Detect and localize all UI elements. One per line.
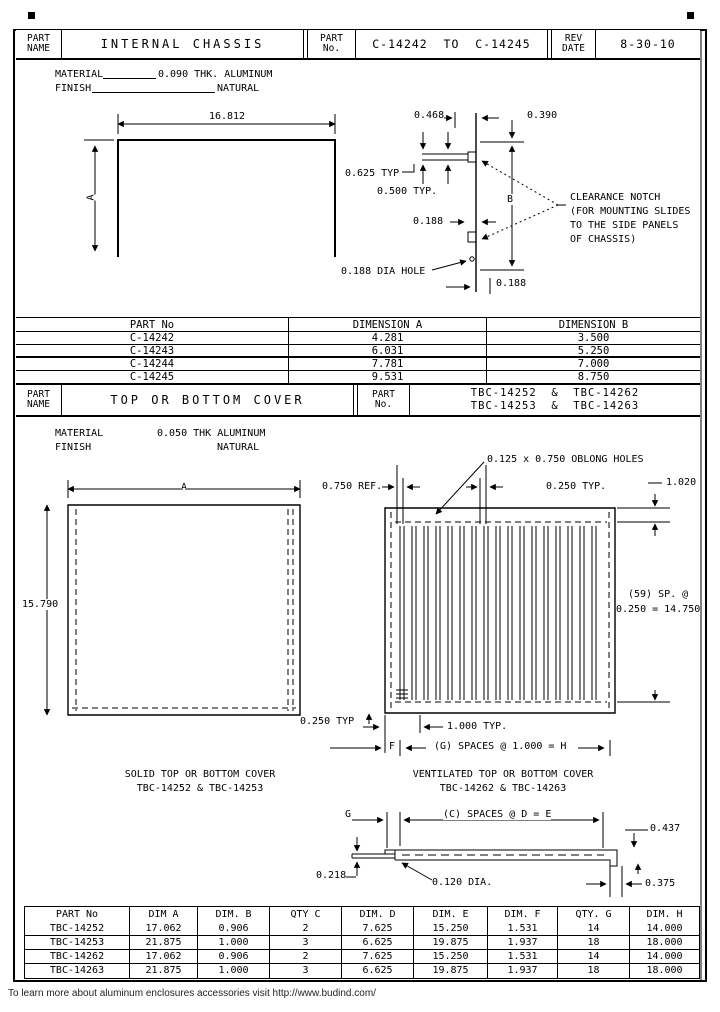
table-cell: 1.531 [487, 950, 557, 963]
part-name-label: PART NAME [16, 30, 62, 58]
material-label: MATERIAL [55, 428, 103, 439]
dim-0120-dia: 0.120 DIA. [432, 877, 492, 888]
finish-value: NATURAL [217, 442, 259, 453]
finish-blank-line [92, 84, 215, 93]
table-cell: 14 [557, 950, 629, 963]
drawing-sheet: PART NAME INTERNAL CHASSIS PART No. C-14… [0, 0, 720, 1012]
table-cell: 21.875 [129, 964, 197, 978]
cover-dimension-table: PART No DIM A DIM. B QTY C DIM. D DIM. E… [24, 906, 700, 979]
part-no-value: C-14242 TO C-14245 [356, 30, 548, 58]
part-name-value: TOP OR BOTTOM COVER [62, 385, 354, 415]
table-cell: 3 [269, 936, 341, 949]
dim-0188-bottom: 0.188 [496, 278, 526, 289]
footer-note: To learn more about aluminum enclosures … [8, 988, 376, 999]
table-cell: 14.000 [629, 922, 699, 935]
dim-0750-ref: 0.750 REF. [322, 481, 382, 492]
caption-solid-cover-line1: SOLID TOP OR BOTTOM COVER [125, 769, 276, 780]
table-cell: 2 [269, 922, 341, 935]
dim-0500-typ: 0.500 TYP. [377, 186, 437, 197]
table-cell: 2 [269, 950, 341, 963]
note-clearance-line2: (FOR MOUNTING SLIDES [570, 206, 690, 217]
table-cell: 18 [557, 964, 629, 978]
table-cell: TBC-14263 [25, 964, 129, 978]
table-cell: 3.500 [486, 332, 700, 344]
table-cell: 6.031 [288, 345, 486, 356]
col-header: PART No [25, 907, 129, 922]
table-cell: 0.906 [197, 922, 269, 935]
clearance-notch-detail [402, 112, 566, 294]
table-row: C-14243 6.031 5.250 [16, 345, 700, 358]
dim-1020: 1.020 [666, 477, 696, 488]
table-header-row: PART No DIMENSION A DIMENSION B [16, 318, 700, 332]
table-cell: 1.937 [487, 964, 557, 978]
table-cell: TBC-14252 [25, 922, 129, 935]
table-cell: C-14244 [16, 358, 288, 370]
note-clearance-line3: TO THE SIDE PANELS [570, 220, 678, 231]
dim-overall-width: 16.812 [209, 111, 245, 122]
table-cell: 1.000 [197, 936, 269, 949]
table-header-row: PART No DIM A DIM. B QTY C DIM. D DIM. E… [25, 907, 699, 922]
col-header: QTY. G [557, 907, 629, 922]
col-header: DIM. D [341, 907, 413, 922]
material-value: 0.090 THK. ALUMINUM [158, 69, 272, 80]
table-cell: 7.625 [341, 950, 413, 963]
table-cell: 17.062 [129, 950, 197, 963]
table-cell: 21.875 [129, 936, 197, 949]
table-cell: 18 [557, 936, 629, 949]
drawing-linework [0, 0, 720, 1012]
dim-notch-0468: 0.468 [414, 110, 444, 121]
table-row: TBC-14253 21.875 1.000 3 6.625 19.875 1.… [25, 936, 699, 950]
rev-date-value: 8-30-10 [596, 30, 700, 58]
dim-15790: 15.790 [22, 599, 58, 610]
col-header: QTY C [269, 907, 341, 922]
dim-0390: 0.390 [527, 110, 557, 121]
cover-profile-view [344, 812, 648, 897]
note-clearance-line1: CLEARANCE NOTCH [570, 192, 660, 203]
note-oblong-holes: 0.125 x 0.750 OBLONG HOLES [487, 454, 644, 465]
rev-date-label: REV DATE [552, 30, 596, 58]
caption-solid-cover-line2: TBC-14252 & TBC-14253 [137, 783, 263, 794]
table-cell: 7.625 [341, 922, 413, 935]
finish-label: FINISH [55, 442, 91, 453]
dim-profile-g: G [345, 809, 351, 820]
dim-0250-typ-top: 0.250 TYP. [546, 481, 606, 492]
dim-59-spaces-line1: (59) SP. @ [628, 589, 688, 600]
dim-0188-dia-hole: 0.188 DIA HOLE [341, 266, 425, 277]
table-cell: 4.281 [288, 332, 486, 344]
finish-label: FINISH [55, 83, 91, 94]
col-header: DIM A [129, 907, 197, 922]
table-row: TBC-14262 17.062 0.906 2 7.625 15.250 1.… [25, 950, 699, 964]
dim-0188: 0.188 [413, 216, 443, 227]
dim-0375: 0.375 [645, 878, 675, 889]
table-cell: 18.000 [629, 964, 699, 978]
table-row: C-14242 4.281 3.500 [16, 332, 700, 345]
table-cell: 19.875 [413, 936, 487, 949]
caption-vent-cover-line2: TBC-14262 & TBC-14263 [440, 783, 566, 794]
dim-0437: 0.437 [650, 823, 680, 834]
dim-0250-typ-bottom: 0.250 TYP [300, 716, 354, 727]
table-cell: 6.625 [341, 936, 413, 949]
table-cell: 6.625 [341, 964, 413, 978]
material-label: MATERIAL [55, 69, 103, 80]
table-cell: 17.062 [129, 922, 197, 935]
table-cell: 19.875 [413, 964, 487, 978]
part-name-value: INTERNAL CHASSIS [62, 30, 304, 58]
note-clearance-line4: OF CHASSIS) [570, 234, 636, 245]
part-name-label: PART NAME [16, 385, 62, 415]
caption-vent-cover-line1: VENTILATED TOP OR BOTTOM COVER [413, 769, 594, 780]
dim-g-spaces: (G) SPACES @ 1.000 = H [434, 741, 566, 752]
table-cell: C-14242 [16, 332, 288, 344]
dim-b: B [507, 194, 513, 205]
material-blank-line [103, 70, 156, 79]
table-row: TBC-14252 17.062 0.906 2 7.625 15.250 1.… [25, 922, 699, 936]
finish-value: NATURAL [217, 83, 259, 94]
col-header: DIM. F [487, 907, 557, 922]
table-cell: 1.000 [197, 964, 269, 978]
col-header: DIM. B [197, 907, 269, 922]
table-cell: 3 [269, 964, 341, 978]
part-no-value: TBC-14252 & TBC-14262 TBC-14253 & TBC-14… [410, 385, 700, 415]
table-cell: TBC-14253 [25, 936, 129, 949]
col-header: DIM. H [629, 907, 699, 922]
table-cell: 7.781 [288, 358, 486, 370]
dim-0218: 0.218 [316, 870, 346, 881]
col-header: DIM. E [413, 907, 487, 922]
chassis-dimension-table: PART No DIMENSION A DIMENSION B C-14242 … [16, 317, 700, 384]
dim-1000-typ: 1.000 TYP. [447, 721, 507, 732]
title-block-cover: PART NAME TOP OR BOTTOM COVER PART No. T… [16, 383, 700, 417]
table-cell: 15.250 [413, 950, 487, 963]
table-row: TBC-14263 21.875 1.000 3 6.625 19.875 1.… [25, 964, 699, 978]
table-cell: 5.250 [486, 345, 700, 356]
part-no-label: PART No. [308, 30, 356, 58]
dim-c-spaces: (C) SPACES @ D = E [443, 809, 551, 820]
table-cell: C-14243 [16, 345, 288, 356]
dim-59-spaces-line2: 0.250 = 14.750 [616, 604, 700, 615]
table-cell: TBC-14262 [25, 950, 129, 963]
title-block-chassis: PART NAME INTERNAL CHASSIS PART No. C-14… [16, 30, 700, 60]
dim-f: F [389, 741, 395, 752]
dim-0625-typ: 0.625 TYP [345, 168, 399, 179]
table-cell: 14.000 [629, 950, 699, 963]
part-no-label: PART No. [358, 385, 410, 415]
material-value: 0.050 THK ALUMINUM [157, 428, 265, 439]
table-cell: 7.000 [486, 358, 700, 370]
table-cell: 1.937 [487, 936, 557, 949]
table-row: C-14244 7.781 7.000 [16, 358, 700, 371]
chassis-front-view [84, 114, 335, 257]
table-cell: 14 [557, 922, 629, 935]
col-header: PART No [16, 318, 288, 331]
table-cell: 15.250 [413, 922, 487, 935]
dim-height-a: A [86, 194, 97, 200]
dim-cover-a: A [181, 482, 187, 493]
solid-cover-view [47, 480, 369, 724]
table-cell: 1.531 [487, 922, 557, 935]
table-cell: 0.906 [197, 950, 269, 963]
col-header: DIMENSION B [486, 318, 700, 331]
col-header: DIMENSION A [288, 318, 486, 331]
table-cell: 18.000 [629, 936, 699, 949]
